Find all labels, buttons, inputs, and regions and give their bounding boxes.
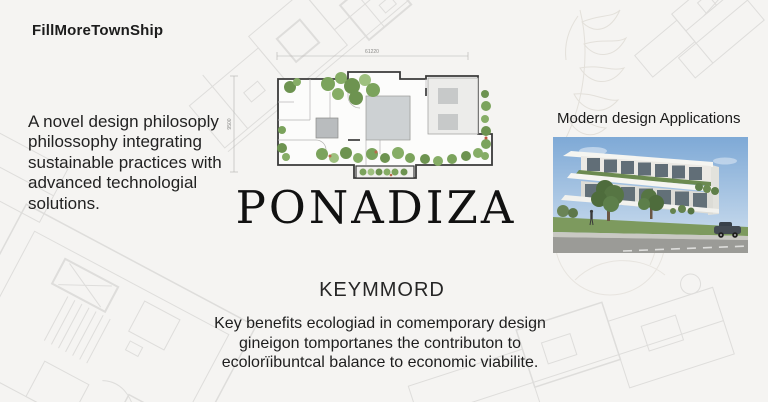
page-title: PONADIZA xyxy=(222,183,530,233)
plan-width-dimension-label: 61220 xyxy=(365,49,379,55)
blueprint-sketch-top-right xyxy=(630,0,765,98)
intro-paragraph: A novel design philosoply philossophy in… xyxy=(28,112,233,214)
plan-small-block xyxy=(316,118,338,138)
plan-central-block xyxy=(366,96,410,140)
photo-caption: Modern design Applications xyxy=(557,110,757,127)
keyword-heading: KEYMMORD xyxy=(282,279,482,302)
benefits-paragraph: Key benefits ecologiad in comemporary de… xyxy=(198,314,562,373)
floor-plan-image: 61220 9500 xyxy=(220,32,512,190)
brand-title: FillMoreTownShip xyxy=(32,22,163,39)
building-photo xyxy=(553,137,748,253)
plan-roof-deck xyxy=(428,78,478,134)
plan-height-dimension-label: 9500 xyxy=(227,118,233,129)
